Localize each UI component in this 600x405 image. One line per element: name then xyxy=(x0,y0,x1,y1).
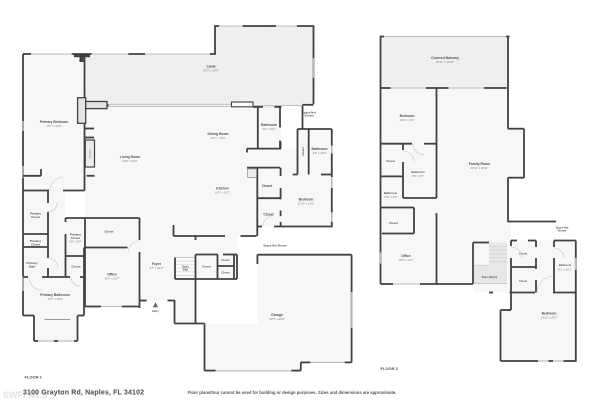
svg-text:FLOOR 2: FLOOR 2 xyxy=(381,366,399,371)
svg-text:Closet: Closet xyxy=(31,215,40,219)
svg-text:Closet: Closet xyxy=(202,265,211,269)
svg-text:Entry: Entry xyxy=(152,309,159,313)
svg-text:Closet: Closet xyxy=(386,159,395,163)
svg-text:Office: Office xyxy=(401,254,411,258)
svg-text:7'10" x 8'3": 7'10" x 8'3" xyxy=(384,195,398,199)
svg-text:11'10" x 15'5": 11'10" x 15'5" xyxy=(298,202,315,206)
svg-text:Office: Office xyxy=(107,273,117,277)
svg-text:Bathroom: Bathroom xyxy=(559,263,572,267)
svg-text:Closet: Closet xyxy=(389,221,398,225)
svg-text:16'6" x 16'1": 16'6" x 16'1" xyxy=(399,118,414,122)
svg-text:Garage: Garage xyxy=(271,313,283,317)
svg-text:Stairs: Stairs xyxy=(182,264,190,268)
svg-text:20'8" x 24'3": 20'8" x 24'3" xyxy=(122,159,137,163)
svg-text:9'1" x 10'1": 9'1" x 10'1" xyxy=(558,268,572,272)
svg-text:Shown: Shown xyxy=(304,114,313,118)
svg-text:26'11" x 12'10": 26'11" x 12'10" xyxy=(436,60,454,64)
svg-text:Living Room: Living Room xyxy=(120,155,141,159)
svg-text:4'6" x 10'3": 4'6" x 10'3" xyxy=(313,151,327,155)
svg-text:Space Not: Space Not xyxy=(556,225,569,229)
svg-text:Bathroom: Bathroom xyxy=(311,147,327,151)
svg-text:53'3" x 16'9": 53'3" x 16'9" xyxy=(203,69,218,73)
svg-text:Bedroom: Bedroom xyxy=(400,114,415,118)
svg-text:15'7" x 24'9": 15'7" x 24'9" xyxy=(46,124,61,128)
svg-text:Closet: Closet xyxy=(72,265,81,269)
svg-text:30'0" x 23'8": 30'0" x 23'8" xyxy=(269,317,284,321)
svg-text:Bath: Bath xyxy=(29,264,36,268)
svg-text:14'10" x 26'2": 14'10" x 26'2" xyxy=(541,316,558,320)
svg-text:3100 Grayton Rd, Naples, FL 34: 3100 Grayton Rd, Naples, FL 34102 xyxy=(23,390,144,397)
svg-text:4'6" x 13'2": 4'6" x 13'2" xyxy=(262,127,276,131)
svg-text:Space Not Shown: Space Not Shown xyxy=(263,244,287,248)
svg-text:Closet: Closet xyxy=(519,279,527,283)
svg-text:10'0" x 14'7": 10'0" x 14'7" xyxy=(398,258,413,262)
svg-text:Covered Balcony: Covered Balcony xyxy=(431,56,459,60)
svg-text:Closet: Closet xyxy=(222,258,230,262)
svg-text:16'0" x 10'2": 16'0" x 10'2" xyxy=(215,191,230,195)
svg-text:10'0" x 13'7": 10'0" x 13'7" xyxy=(104,277,119,281)
svg-text:14'7" x 16'0": 14'7" x 16'0" xyxy=(210,136,225,140)
svg-text:Stairs (Down): Stairs (Down) xyxy=(482,276,498,279)
svg-text:Closet: Closet xyxy=(31,242,40,246)
svg-text:Closet: Closet xyxy=(222,270,230,274)
svg-text:Dining Room: Dining Room xyxy=(207,132,228,136)
svg-text:Closet: Closet xyxy=(263,213,274,217)
svg-text:Closet: Closet xyxy=(301,147,305,156)
svg-text:Bathroom: Bathroom xyxy=(384,191,398,195)
svg-text:Bathroom: Bathroom xyxy=(261,123,277,127)
svg-text:Closet: Closet xyxy=(262,184,273,188)
svg-text:Bathroom: Bathroom xyxy=(411,170,425,174)
svg-text:Foyer: Foyer xyxy=(152,262,162,266)
svg-text:(Up): (Up) xyxy=(183,268,188,272)
svg-text:Closet: Closet xyxy=(105,230,114,234)
svg-text:Kitchen: Kitchen xyxy=(216,187,228,191)
svg-text:Floor plans/tour cannot be use: Floor plans/tour cannot be used for buil… xyxy=(188,390,397,395)
svg-text:Bedroom: Bedroom xyxy=(299,198,314,202)
svg-text:8'7" x 14'9": 8'7" x 14'9" xyxy=(150,266,164,270)
svg-text:14'7" x 16'5": 14'7" x 16'5" xyxy=(47,297,62,301)
svg-text:Family Room: Family Room xyxy=(469,162,490,166)
svg-text:5'0" x 9'0": 5'0" x 9'0" xyxy=(69,239,81,243)
svg-text:Primary Bedroom: Primary Bedroom xyxy=(40,120,68,124)
svg-text:Lanai: Lanai xyxy=(207,65,216,69)
svg-text:Shown: Shown xyxy=(558,229,567,233)
svg-text:FLOOR 1: FLOOR 1 xyxy=(25,375,43,380)
svg-text:20'11" x 40'11": 20'11" x 40'11" xyxy=(470,166,488,170)
svg-text:9'9" x 6'6": 9'9" x 6'6" xyxy=(412,174,424,178)
svg-text:Bedroom: Bedroom xyxy=(542,312,557,316)
svg-text:Primary Bathroom: Primary Bathroom xyxy=(40,293,70,297)
